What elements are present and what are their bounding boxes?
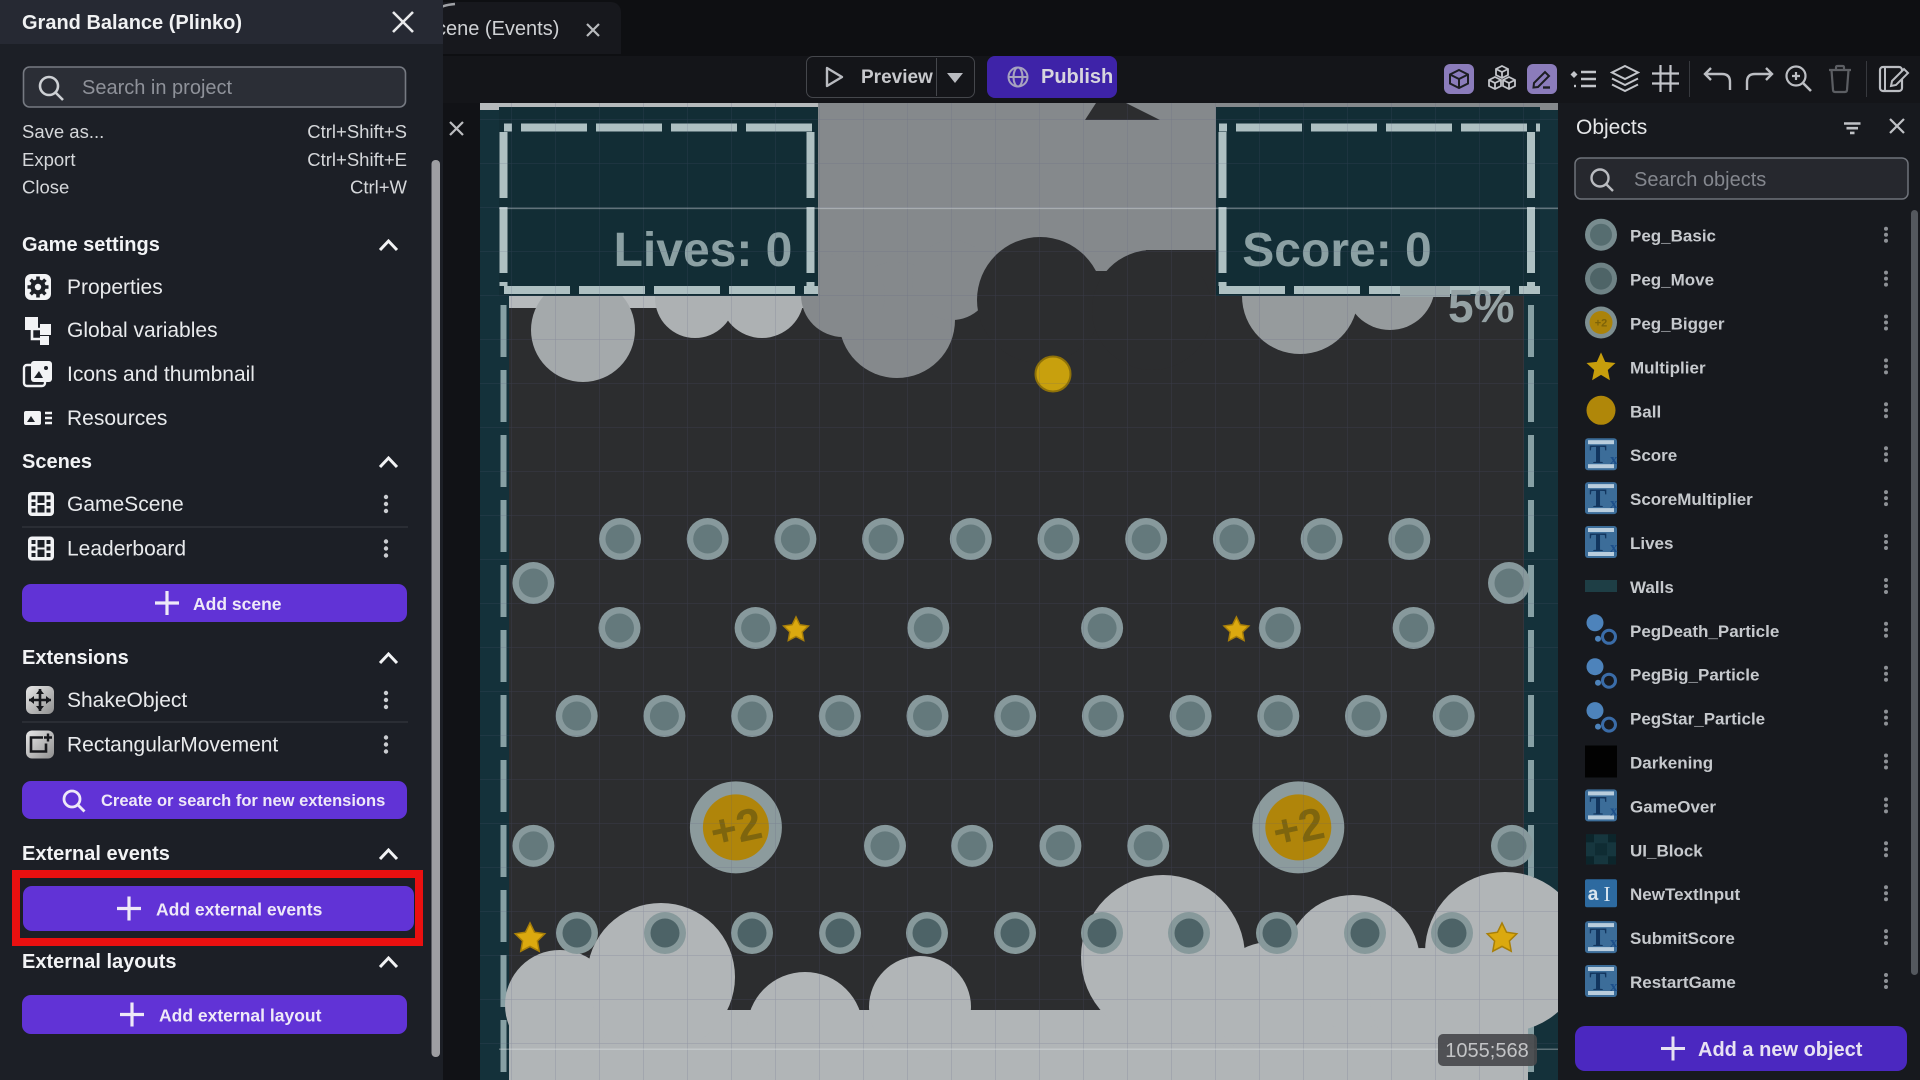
svg-text:ShakeObject: ShakeObject [67,689,187,712]
svg-text:Properties: Properties [67,276,163,299]
svg-text:Scenes: Scenes [22,451,92,473]
svg-text:Resources: Resources [67,407,167,430]
svg-text:1055;568: 1055;568 [1445,1040,1528,1062]
svg-text:Ctrl+Shift+E: Ctrl+Shift+E [307,149,407,170]
svg-text:Export: Export [22,149,75,170]
svg-text:a: a [1588,884,1599,905]
svg-text:Walls: Walls [1630,578,1674,597]
svg-text:Extensions: Extensions [22,647,129,669]
svg-text:GameOver: GameOver [1630,797,1716,816]
svg-text:SubmitScore: SubmitScore [1630,929,1735,948]
svg-text:Global variables: Global variables [67,319,218,342]
svg-text:Leaderboard: Leaderboard [67,538,186,561]
svg-text:I: I [1604,882,1611,906]
svg-text:Add external events: Add external events [156,900,323,920]
svg-text:Peg_Move: Peg_Move [1630,271,1714,290]
svg-text:Search in project: Search in project [82,77,233,99]
svg-text:PegBig_Particle: PegBig_Particle [1630,666,1759,685]
svg-text:Darkening: Darkening [1630,754,1713,773]
svg-text:GameScene: GameScene [67,493,184,516]
svg-text:RectangularMovement: RectangularMovement [67,734,278,757]
svg-text:Grand Balance (Plinko): Grand Balance (Plinko) [22,12,242,34]
svg-text:External layouts: External layouts [22,951,177,973]
svg-text:Peg_Bigger: Peg_Bigger [1630,315,1725,334]
svg-text:Score: Score [1630,446,1677,465]
svg-text:Peg_Basic: Peg_Basic [1630,227,1716,246]
svg-text:Objects: Objects [1576,116,1647,139]
svg-text:NewTextInput: NewTextInput [1630,885,1741,904]
svg-text:Create or search for new exten: Create or search for new extensions [101,792,385,810]
svg-text:Game settings: Game settings [22,234,160,256]
svg-text:Add external layout: Add external layout [159,1006,322,1026]
svg-text:ScoreMultiplier: ScoreMultiplier [1630,490,1753,509]
svg-text:Close: Close [22,177,69,198]
svg-text:Add scene: Add scene [193,594,282,614]
svg-text:Ctrl+W: Ctrl+W [350,177,408,198]
svg-text:Ball: Ball [1630,402,1661,421]
svg-text:Save as...: Save as... [22,121,104,142]
svg-text:Icons and thumbnail: Icons and thumbnail [67,363,255,386]
svg-text:Multiplier: Multiplier [1630,358,1706,377]
svg-text:Ctrl+Shift+S: Ctrl+Shift+S [307,121,407,142]
svg-text:RestartGame: RestartGame [1630,973,1736,992]
svg-text:Add a new object: Add a new object [1698,1039,1863,1061]
svg-text:Lives: Lives [1630,534,1673,553]
svg-text:UI_Block: UI_Block [1630,841,1703,860]
svg-text:PegDeath_Particle: PegDeath_Particle [1630,622,1779,641]
svg-text:External events: External events [22,843,170,865]
svg-text:Search objects: Search objects [1634,169,1766,191]
svg-text:PegStar_Particle: PegStar_Particle [1630,710,1765,729]
